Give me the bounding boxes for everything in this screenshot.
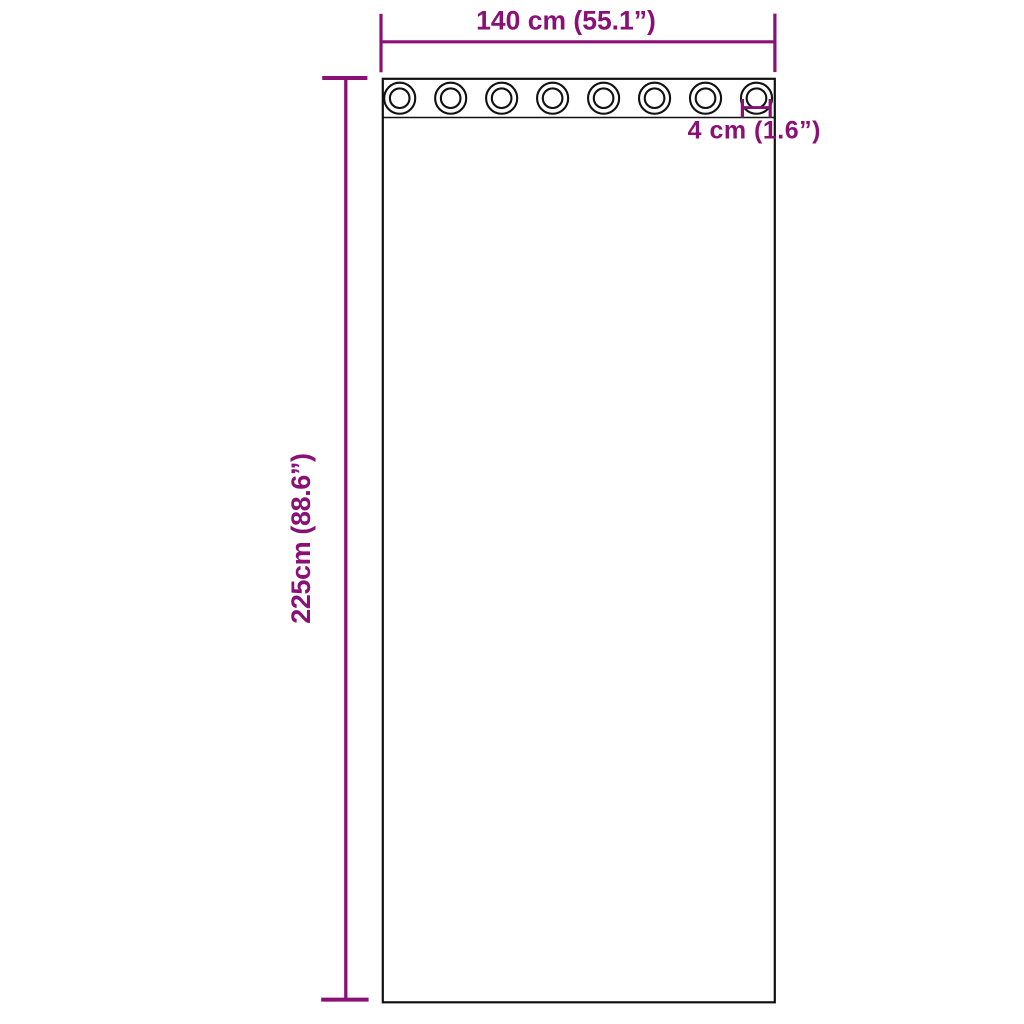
svg-text:4 cm (1.6”): 4 cm (1.6”) [688, 116, 821, 144]
svg-text:140 cm (55.1”): 140 cm (55.1”) [476, 6, 656, 36]
svg-text:225cm (88.6”): 225cm (88.6”) [286, 453, 316, 623]
